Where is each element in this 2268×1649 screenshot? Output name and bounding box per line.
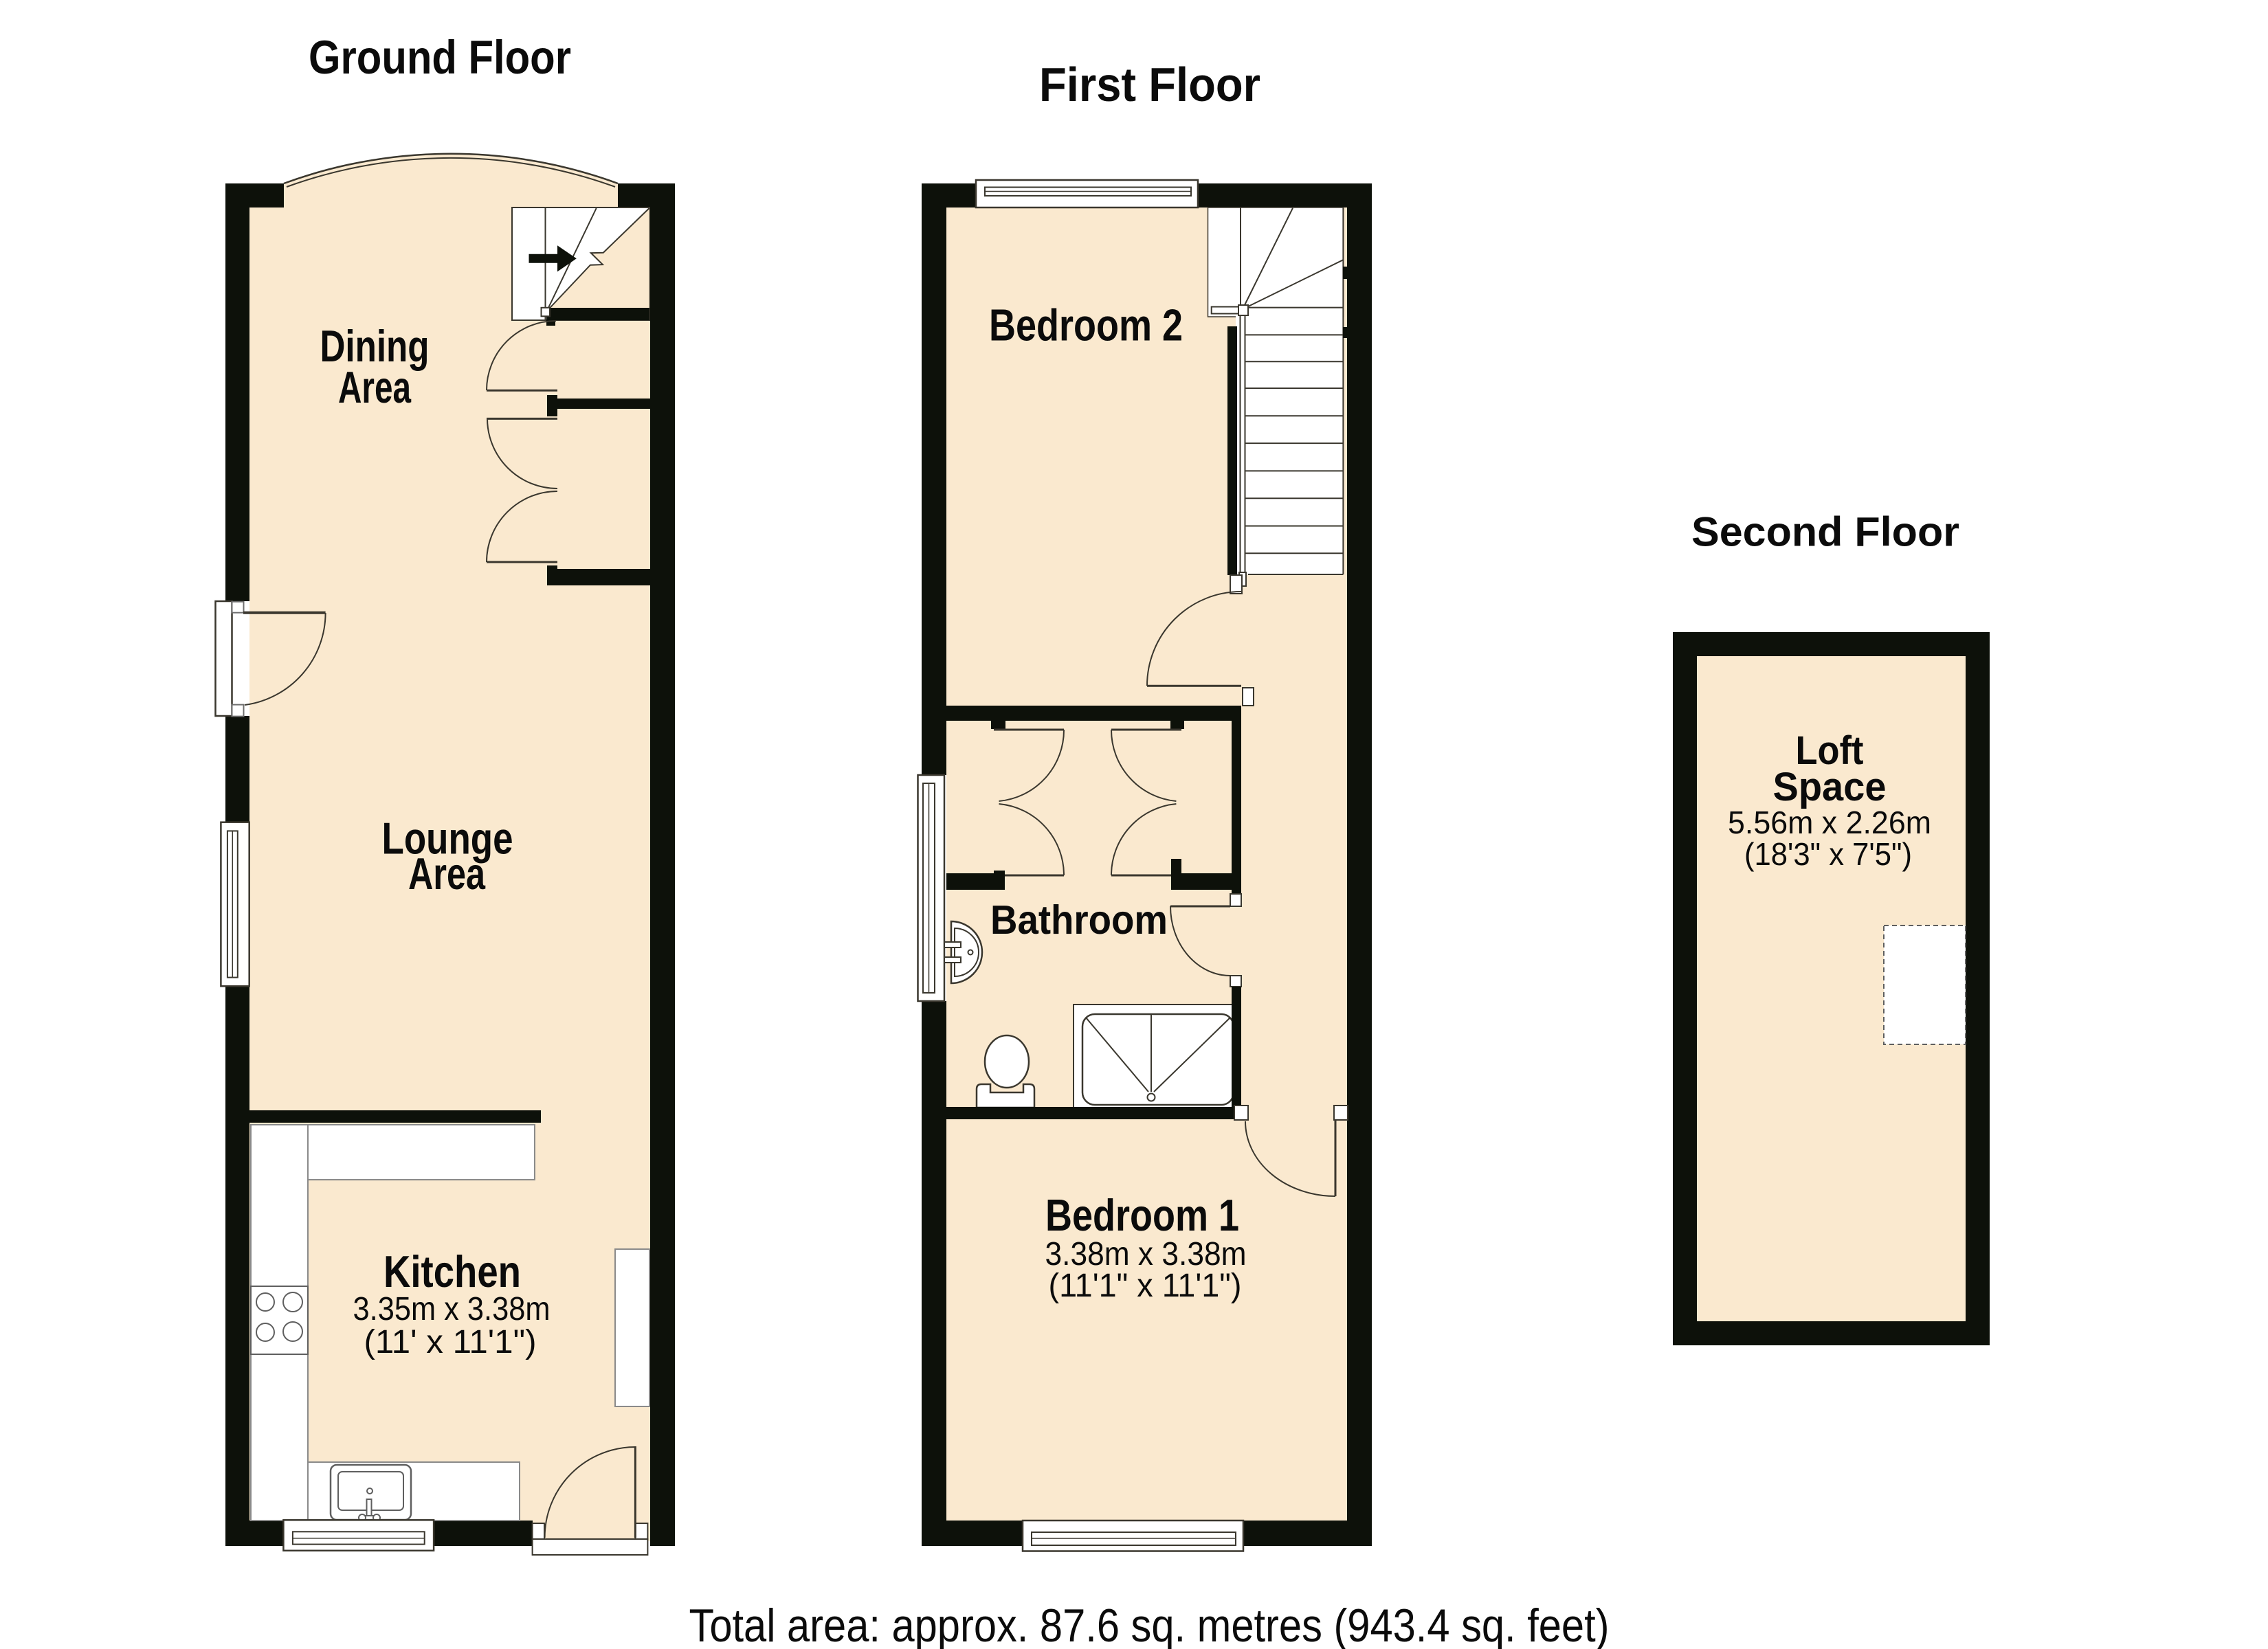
svg-text:Kitchen: Kitchen: [383, 1246, 521, 1297]
svg-text:Total area: approx. 87.6 sq. m: Total area: approx. 87.6 sq. metres (943…: [689, 1600, 1610, 1649]
svg-text:(18'3" x 7'5"): (18'3" x 7'5"): [1744, 836, 1912, 872]
svg-text:(11'1" x 11'1"): (11'1" x 11'1"): [1049, 1268, 1242, 1304]
svg-text:Area: Area: [408, 849, 486, 899]
svg-text:Bedroom 1: Bedroom 1: [1045, 1190, 1239, 1240]
svg-text:Bathroom: Bathroom: [990, 897, 1168, 943]
svg-text:Second Floor: Second Floor: [1691, 509, 1959, 555]
svg-text:Ground Floor: Ground Floor: [309, 31, 571, 84]
svg-text:Bedroom 2: Bedroom 2: [989, 300, 1183, 350]
svg-text:First Floor: First Floor: [1039, 58, 1260, 111]
svg-text:3.35m x 3.38m: 3.35m x 3.38m: [353, 1291, 551, 1327]
svg-text:Area: Area: [338, 362, 412, 412]
svg-text:Space: Space: [1773, 765, 1887, 809]
svg-text:(11' x 11'1"): (11' x 11'1"): [364, 1324, 537, 1360]
svg-text:5.56m x 2.26m: 5.56m x 2.26m: [1728, 805, 1931, 840]
